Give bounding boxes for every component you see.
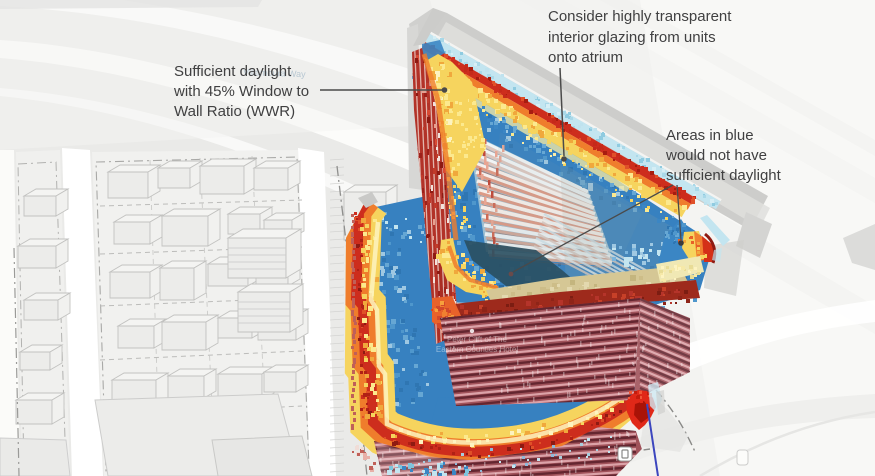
svg-text:Areas in blue: Areas in blue	[666, 127, 754, 144]
svg-text:Sufficient daylight: Sufficient daylight	[174, 63, 292, 80]
svg-text:Eastern Counties Hotel: Eastern Counties Hotel	[436, 345, 518, 354]
svg-text:onto atrium: onto atrium	[548, 49, 623, 66]
svg-text:with 45% Window to: with 45% Window to	[173, 83, 309, 100]
svg-text:interior glazing from units: interior glazing from units	[548, 29, 716, 46]
svg-text:sufficient daylight: sufficient daylight	[666, 167, 782, 184]
svg-text:Consider highly transparent: Consider highly transparent	[548, 8, 732, 25]
svg-text:Peter Clift of The: Peter Clift of The	[447, 335, 507, 344]
svg-text:would not have: would not have	[665, 147, 767, 164]
svg-text:Wall Ratio (WWR): Wall Ratio (WWR)	[174, 103, 295, 120]
